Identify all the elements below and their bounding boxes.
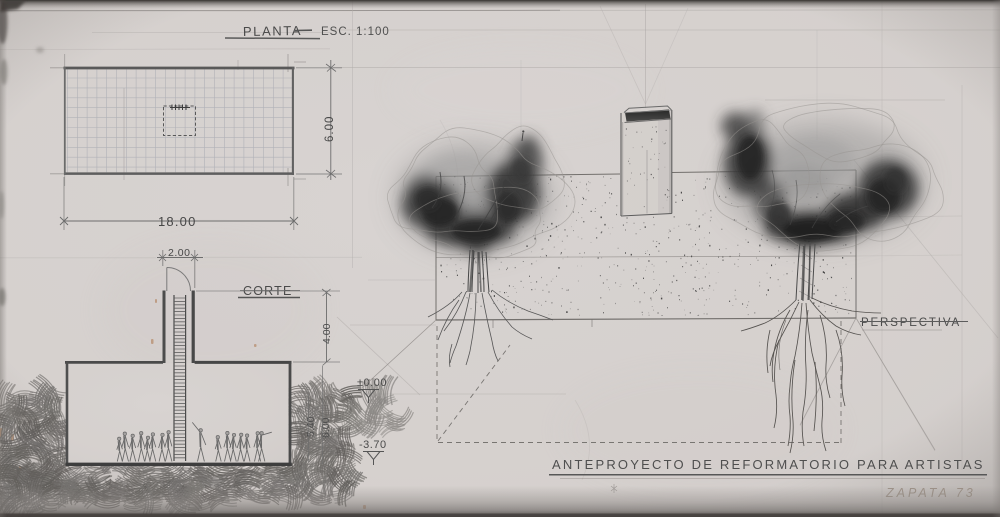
svg-text:4.00: 4.00 — [321, 323, 333, 344]
svg-text:5.40: 5.40 — [305, 416, 317, 437]
svg-text:6.00: 6.00 — [320, 417, 332, 438]
svg-text:18.00: 18.00 — [158, 214, 197, 229]
svg-text:PLANTA: PLANTA — [243, 23, 302, 39]
svg-text:-3.70: -3.70 — [359, 439, 387, 451]
svg-text:ANTEPROYECTO DE REFORMATORIO P: ANTEPROYECTO DE REFORMATORIO PARA ARTIST… — [552, 457, 985, 472]
svg-text:2.00: 2.00 — [168, 247, 190, 259]
svg-text:6.00: 6.00 — [324, 116, 336, 142]
svg-text:ESC. 1:100: ESC. 1:100 — [321, 26, 390, 38]
svg-text:PERSPECTIVA: PERSPECTIVA — [861, 317, 961, 329]
